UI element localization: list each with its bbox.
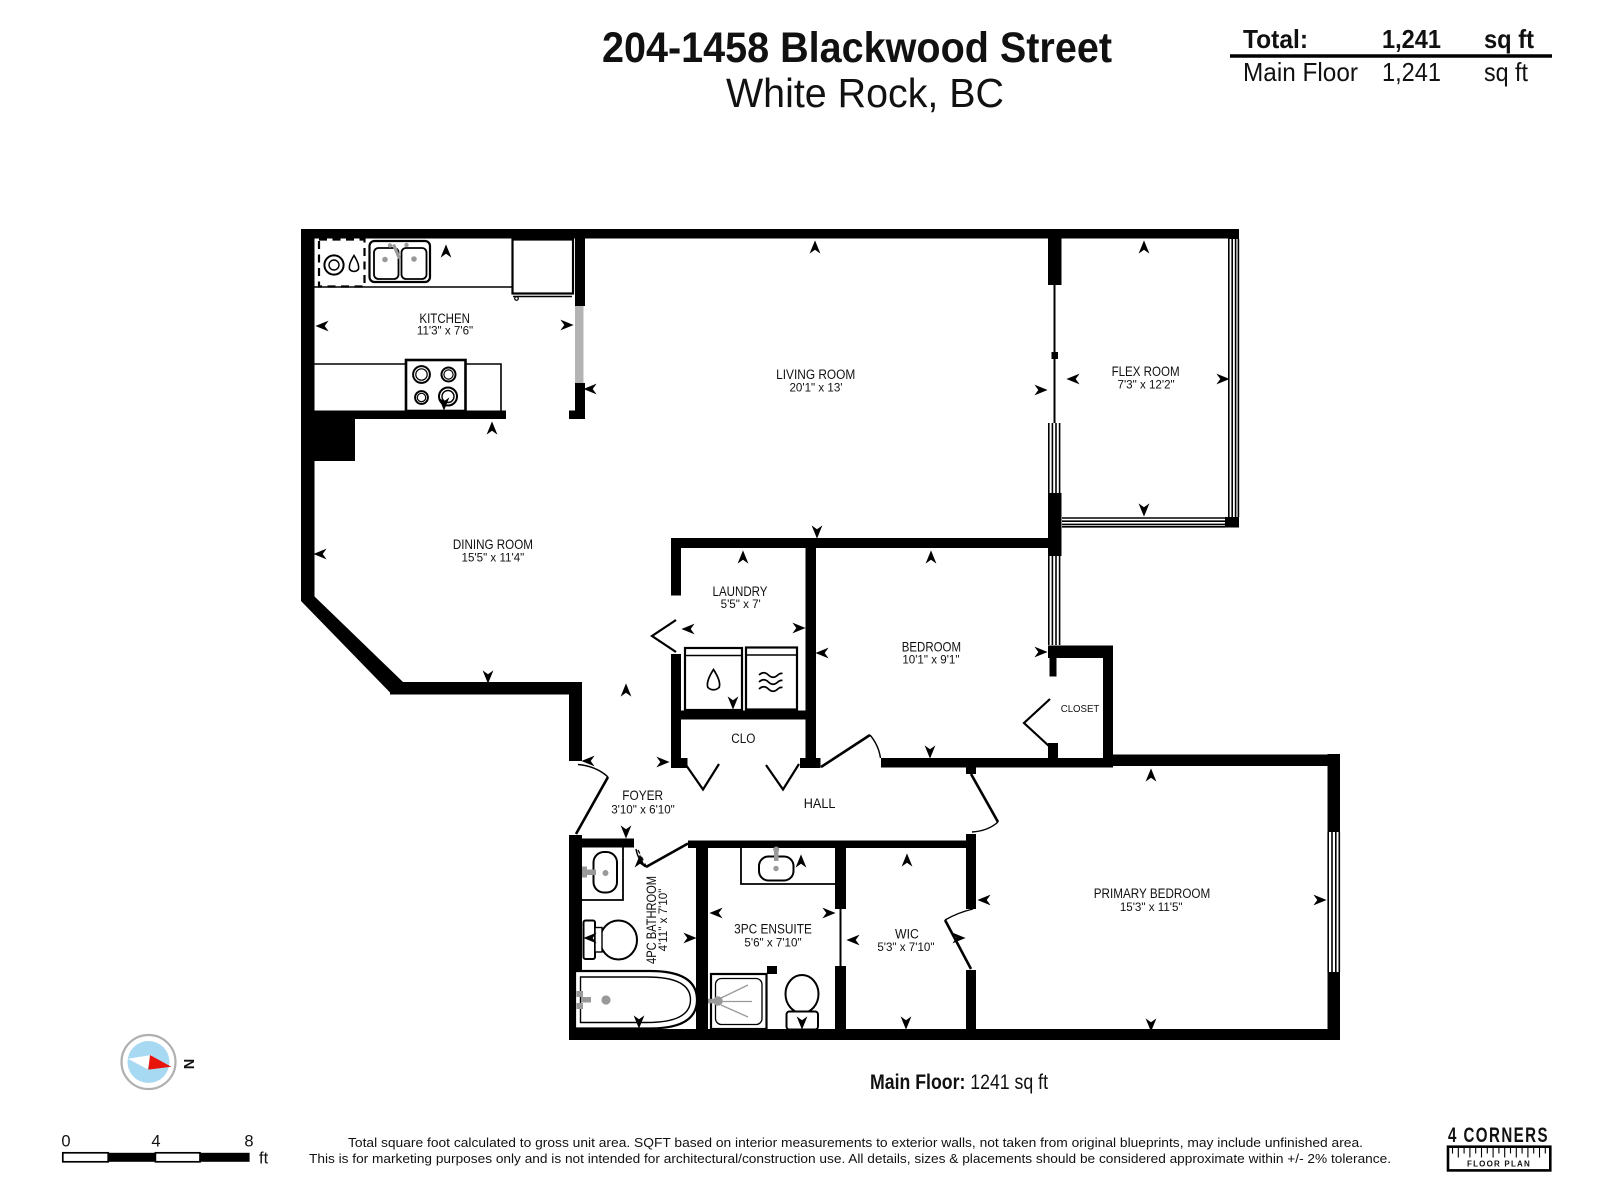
svg-text:FLOOR PLAN: FLOOR PLAN — [1467, 1160, 1531, 1169]
svg-text:204-1458 Blackwood Street: 204-1458 Blackwood Street — [602, 24, 1112, 72]
svg-text:White Rock, BC: White Rock, BC — [726, 70, 1004, 116]
svg-text:5'5" x 7': 5'5" x 7' — [721, 598, 761, 611]
svg-text:8: 8 — [244, 1133, 253, 1151]
svg-text:15'3" x 11'5": 15'3" x 11'5" — [1120, 901, 1183, 914]
svg-text:LIVING ROOM: LIVING ROOM — [776, 366, 855, 382]
svg-text:CLO: CLO — [731, 730, 755, 746]
svg-text:11'3" x 7'6": 11'3" x 7'6" — [417, 324, 473, 337]
svg-text:HALL: HALL — [804, 795, 836, 811]
svg-text:BEDROOM: BEDROOM — [902, 638, 961, 654]
svg-text:FOYER: FOYER — [622, 787, 663, 803]
svg-text:WIC: WIC — [895, 926, 919, 942]
svg-text:15'5" x 11'4": 15'5" x 11'4" — [462, 552, 525, 565]
svg-text:ft: ft — [259, 1150, 269, 1168]
svg-text:sq ft: sq ft — [1484, 24, 1534, 54]
svg-text:3'10" x 6'10": 3'10" x 6'10" — [611, 804, 675, 817]
svg-text:10'1" x 9'1": 10'1" x 9'1" — [902, 653, 959, 666]
svg-text:Total square foot calculated t: Total square foot calculated to gross un… — [348, 1135, 1363, 1150]
svg-text:sq ft: sq ft — [1484, 57, 1529, 87]
svg-text:4'11" x 7'10": 4'11" x 7'10" — [657, 889, 670, 952]
svg-text:Total:: Total: — [1243, 24, 1308, 54]
svg-text:5'6" x 7'10": 5'6" x 7'10" — [744, 936, 801, 949]
svg-text:N: N — [180, 1059, 196, 1069]
svg-text:20'1" x 13': 20'1" x 13' — [789, 382, 842, 395]
svg-text:Main Floor: 1241 sq ft: Main Floor: 1241 sq ft — [870, 1071, 1048, 1094]
svg-text:DINING ROOM: DINING ROOM — [453, 536, 533, 552]
svg-text:0: 0 — [61, 1133, 70, 1151]
svg-text:5'3" x 7'10": 5'3" x 7'10" — [877, 941, 934, 954]
svg-text:3PC ENSUITE: 3PC ENSUITE — [734, 921, 812, 937]
svg-text:1,241: 1,241 — [1382, 57, 1441, 87]
svg-text:4 CORNERS: 4 CORNERS — [1448, 1124, 1549, 1147]
svg-text:FLEX ROOM: FLEX ROOM — [1112, 363, 1180, 379]
svg-text:PRIMARY BEDROOM: PRIMARY BEDROOM — [1094, 885, 1211, 901]
svg-text:7'3" x 12'2": 7'3" x 12'2" — [1118, 378, 1175, 391]
svg-text:CLOSET: CLOSET — [1061, 704, 1100, 715]
svg-text:1,241: 1,241 — [1382, 24, 1441, 54]
svg-text:4: 4 — [151, 1133, 160, 1151]
svg-text:LAUNDRY: LAUNDRY — [713, 583, 768, 599]
svg-text:This is for marketing purposes: This is for marketing purposes only and … — [309, 1151, 1391, 1166]
svg-text:Main Floor: Main Floor — [1243, 57, 1358, 87]
